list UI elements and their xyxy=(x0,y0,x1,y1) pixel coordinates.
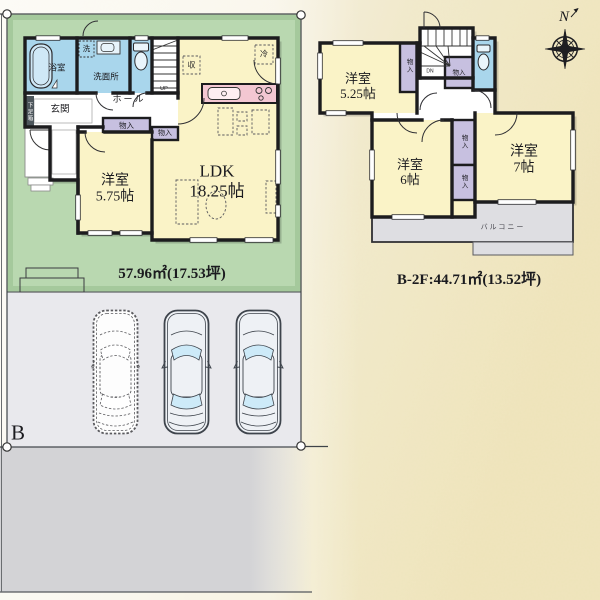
toilet-icon-2f xyxy=(477,45,490,70)
toilet-icon-1f xyxy=(134,43,149,70)
closet-1f-b xyxy=(152,127,178,140)
closet-2f-a xyxy=(400,43,417,92)
room-western-6 xyxy=(372,120,452,217)
closet-2f-d xyxy=(452,165,475,200)
car-1 xyxy=(91,311,140,434)
floorplan-canvas: 浴室 洗 洗面所 玄関 下足箱 ホール UP 収 冷 物入 物入 洋室 5.75… xyxy=(0,0,600,600)
room-western-575 xyxy=(78,132,152,233)
room-western-7 xyxy=(475,113,573,202)
floor-plan-drawing xyxy=(0,0,600,600)
closet-2f-c xyxy=(452,120,475,165)
closet-1f-a xyxy=(103,118,150,132)
car-3 xyxy=(234,311,283,434)
parking-cars xyxy=(91,311,283,434)
car-2 xyxy=(162,311,211,434)
